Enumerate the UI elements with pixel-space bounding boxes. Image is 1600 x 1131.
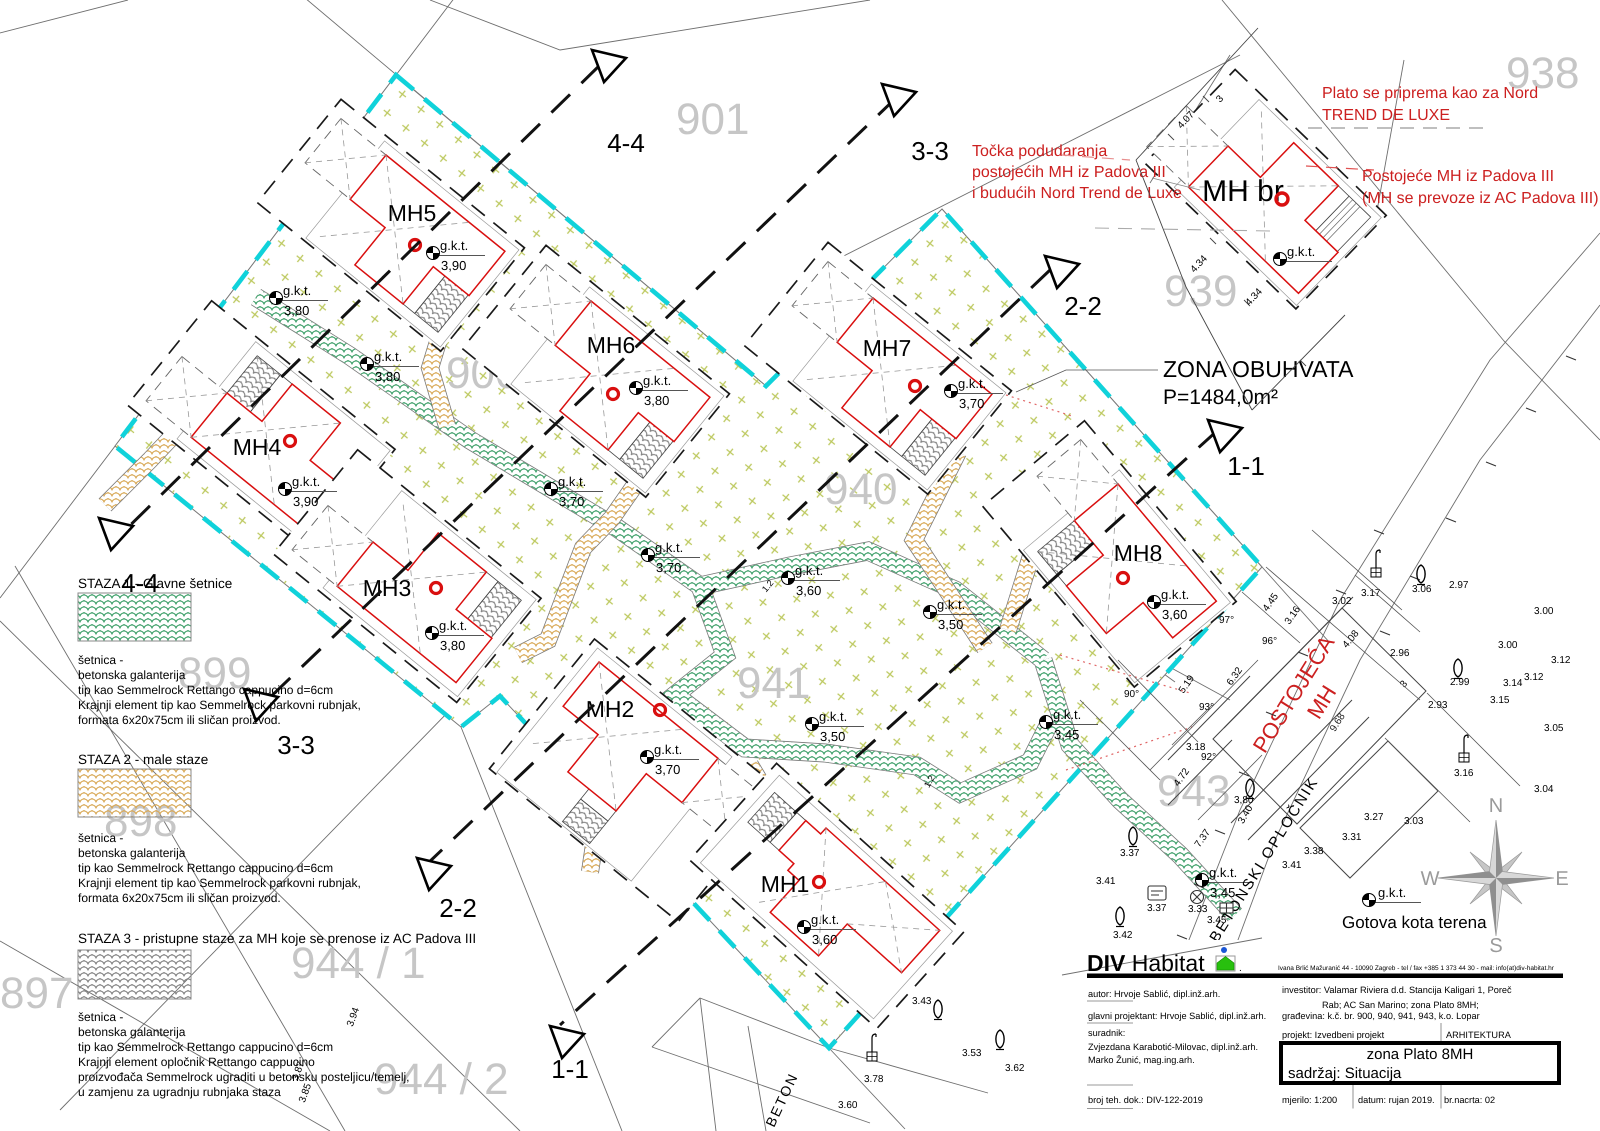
svg-text:tip kao Semmelrock Rettango ca: tip kao Semmelrock Rettango cappucino d=… [78, 683, 333, 697]
svg-text:g.k.t.: g.k.t. [811, 912, 839, 927]
svg-text:šetnica -: šetnica - [78, 831, 123, 845]
svg-text:g.k.t.: g.k.t. [292, 474, 320, 489]
svg-text:3.45: 3.45 [1207, 915, 1227, 926]
svg-text:g.k.t.: g.k.t. [283, 283, 311, 298]
svg-text:3,60: 3,60 [1162, 607, 1187, 622]
svg-text:g.k.t.: g.k.t. [1287, 244, 1315, 259]
svg-text:3-3: 3-3 [911, 136, 949, 166]
svg-text:3,70: 3,70 [559, 494, 584, 509]
svg-text:g.k.t.: g.k.t. [819, 709, 847, 724]
svg-text:3,80: 3,80 [284, 303, 309, 318]
svg-text:3.02: 3.02 [1332, 596, 1352, 607]
svg-text:3.42: 3.42 [1113, 930, 1133, 941]
svg-text:g.k.t.: g.k.t. [1053, 707, 1081, 722]
svg-text:3.06: 3.06 [1412, 584, 1432, 595]
svg-text:2.97: 2.97 [1449, 580, 1469, 591]
svg-text:MH7: MH7 [863, 335, 912, 361]
svg-text:ARHITEKTURA: ARHITEKTURA [1446, 1030, 1512, 1040]
svg-text:1-1: 1-1 [1227, 451, 1265, 481]
svg-text:939: 939 [1164, 267, 1237, 316]
svg-text:2-2: 2-2 [439, 893, 477, 923]
svg-text:E: E [1555, 868, 1568, 890]
svg-text:N: N [1489, 795, 1503, 817]
svg-text:STAZA 2 - male staze: STAZA 2 - male staze [78, 752, 208, 767]
svg-text:3.37: 3.37 [1147, 903, 1167, 914]
svg-text:W: W [1421, 868, 1440, 890]
svg-text:901: 901 [676, 95, 749, 144]
svg-text:betonska galanterija: betonska galanterija [78, 846, 186, 860]
svg-text:P=1484,0m²: P=1484,0m² [1163, 386, 1278, 409]
svg-text:97°: 97° [1219, 615, 1234, 626]
svg-text:g.k.t.: g.k.t. [440, 238, 468, 253]
svg-text:3,80: 3,80 [644, 393, 669, 408]
svg-text:90°: 90° [1124, 689, 1139, 700]
svg-text:MH1: MH1 [761, 871, 810, 897]
svg-text:3.16: 3.16 [1454, 768, 1474, 779]
svg-text:3.78: 3.78 [864, 1074, 884, 1085]
svg-text:3.38: 3.38 [1304, 846, 1324, 857]
svg-text:3.05: 3.05 [1544, 723, 1564, 734]
svg-text:MH4: MH4 [233, 434, 282, 460]
svg-text:g.k.t.: g.k.t. [937, 597, 965, 612]
svg-text:3.04: 3.04 [1534, 784, 1554, 795]
svg-text:3.43: 3.43 [912, 996, 932, 1007]
svg-text:2.93: 2.93 [1428, 700, 1448, 711]
svg-text:g.k.t.: g.k.t. [655, 540, 683, 555]
svg-text:šetnica -: šetnica - [78, 653, 123, 667]
svg-text:Ivana Brlić Mažuranić 44 - 100: Ivana Brlić Mažuranić 44 - 10090 Zagreb … [1278, 965, 1555, 972]
svg-text:i budućih Nord Trend de Luxe: i budućih Nord Trend de Luxe [972, 185, 1182, 202]
svg-text:formata 6x20x75cm ili sličan p: formata 6x20x75cm ili sličan proizvod. [78, 891, 281, 905]
svg-text:STAZA 1 - Glavne šetnice: STAZA 1 - Glavne šetnice [78, 576, 232, 591]
svg-text:ZONA OBUHVATA: ZONA OBUHVATA [1163, 356, 1354, 382]
svg-text:Zvjezdana Karabotić-Milovac, d: Zvjezdana Karabotić-Milovac, dipl.inž.ar… [1088, 1042, 1258, 1052]
svg-text:3,70: 3,70 [656, 560, 681, 575]
svg-text:tip kao Semmelrock Rettango ca: tip kao Semmelrock Rettango cappucino d=… [78, 1040, 333, 1054]
svg-text:3,80: 3,80 [440, 638, 465, 653]
svg-text:Postojeće MH iz Padova III: Postojeće MH iz Padova III [1362, 168, 1554, 185]
svg-text:3.15: 3.15 [1490, 695, 1510, 706]
svg-text:g.k.t.: g.k.t. [374, 349, 402, 364]
svg-text:betonska galanterija: betonska galanterija [78, 668, 186, 682]
svg-text:3,60: 3,60 [796, 583, 821, 598]
svg-text:MH6: MH6 [587, 332, 636, 358]
svg-text:3.37: 3.37 [1120, 848, 1140, 859]
svg-text:Krajnji element tip kao Semmel: Krajnji element tip kao Semmelrock parko… [78, 876, 361, 890]
svg-text:96°: 96° [1262, 636, 1277, 647]
svg-text:3,80: 3,80 [375, 369, 400, 384]
svg-text:g.k.t.: g.k.t. [643, 373, 671, 388]
svg-text:3,90: 3,90 [293, 494, 318, 509]
svg-text:3.00: 3.00 [1498, 640, 1518, 651]
svg-text:3.27: 3.27 [1364, 812, 1384, 823]
svg-text:3.03: 3.03 [1404, 816, 1424, 827]
svg-text:sadržaj: Situacija: sadržaj: Situacija [1288, 1065, 1402, 1082]
svg-text:3.53: 3.53 [962, 1048, 982, 1059]
svg-text:2-2: 2-2 [1064, 291, 1102, 321]
svg-text:br.nacrta: 02: br.nacrta: 02 [1444, 1095, 1495, 1105]
svg-text:g.k.t.: g.k.t. [1161, 587, 1189, 602]
svg-text:944 / 1: 944 / 1 [291, 939, 426, 988]
svg-text:3.17: 3.17 [1361, 588, 1381, 599]
svg-text:Krajnji element opločnik Retta: Krajnji element opločnik Rettango cappuc… [78, 1055, 315, 1069]
svg-text:g.k.t.: g.k.t. [1378, 885, 1406, 900]
svg-text:3.41: 3.41 [1096, 876, 1116, 887]
svg-text:tip kao Semmelrock Rettango ca: tip kao Semmelrock Rettango cappucino d=… [78, 861, 333, 875]
svg-text:projekt: Izvedbeni projekt: projekt: Izvedbeni projekt [1282, 1030, 1385, 1040]
svg-text:3.14: 3.14 [1503, 678, 1523, 689]
svg-text:1-1: 1-1 [551, 1054, 589, 1084]
svg-text:u zamjenu za ugradnju rubnjaka: u zamjenu za ugradnju rubnjaka staza [78, 1085, 281, 1099]
svg-text:3.33: 3.33 [1188, 904, 1208, 915]
svg-text:S: S [1489, 935, 1502, 957]
svg-text:šetnica -: šetnica - [78, 1010, 123, 1024]
svg-text:postojećih MH iz Padova III: postojećih MH iz Padova III [972, 164, 1166, 181]
svg-text:g.k.t.: g.k.t. [654, 742, 682, 757]
svg-text:MH2: MH2 [586, 696, 635, 722]
svg-text:datum: rujan 2019.: datum: rujan 2019. [1358, 1095, 1435, 1105]
svg-text:Marko Žunić, mag.ing.arh.: Marko Žunić, mag.ing.arh. [1088, 1054, 1195, 1065]
svg-text:g.k.t.: g.k.t. [795, 563, 823, 578]
svg-text:Rab; AC San Marino; zona Plato: Rab; AC San Marino; zona Plato 8MH; [1322, 1000, 1479, 1010]
svg-text:943: 943 [1157, 767, 1230, 816]
svg-text:941: 941 [737, 659, 810, 708]
svg-text:Gotova kota terena: Gotova kota terena [1342, 913, 1487, 932]
svg-text:Krajnji element tip kao Semmel: Krajnji element tip kao Semmelrock parko… [78, 698, 361, 712]
svg-text:3,50: 3,50 [820, 729, 845, 744]
svg-text:.: . [1239, 963, 1242, 974]
svg-text:betonska galanterija: betonska galanterija [78, 1025, 186, 1039]
svg-text:proizvođača Semmelrock ugradit: proizvođača Semmelrock ugraditi u betons… [78, 1070, 410, 1084]
svg-text:3.12: 3.12 [1551, 655, 1571, 666]
svg-text:3.31: 3.31 [1342, 832, 1362, 843]
svg-text:Plato se priprema kao za Nord: Plato se priprema kao za Nord [1322, 85, 1538, 102]
svg-text:TREND DE LUXE: TREND DE LUXE [1322, 107, 1450, 124]
svg-text:3,50: 3,50 [938, 617, 963, 632]
svg-text:3,70: 3,70 [655, 762, 680, 777]
svg-text:DIV Habitat: DIV Habitat [1087, 950, 1205, 976]
svg-text:4-4: 4-4 [607, 128, 645, 158]
svg-text:g.k.t.: g.k.t. [1209, 865, 1237, 880]
svg-text:građevina: k.č. br. 900, 940,: građevina: k.č. br. 900, 940, 941, 943, … [1282, 1011, 1480, 1021]
svg-text:3.41: 3.41 [1282, 860, 1302, 871]
svg-text:92°: 92° [1201, 752, 1216, 763]
svg-text:3.12: 3.12 [1524, 672, 1544, 683]
svg-text:investitor: Valamar Riviera d: investitor: Valamar Riviera d.d. Stancij… [1282, 985, 1512, 995]
svg-text:MH br: MH br [1202, 175, 1284, 208]
svg-text:formata 6x20x75cm ili sličan p: formata 6x20x75cm ili sličan proizvod. [78, 713, 281, 727]
svg-text:g.k.t.: g.k.t. [958, 376, 986, 391]
svg-text:MH8: MH8 [1114, 540, 1163, 566]
svg-text:3.60: 3.60 [838, 1100, 858, 1111]
svg-text:autor: Hrvoje Sablić, dipl.i: autor: Hrvoje Sablić, dipl.inž.arh. [1088, 989, 1220, 999]
svg-text:suradnik:: suradnik: [1088, 1028, 1125, 1038]
svg-text:897: 897 [0, 969, 73, 1018]
svg-text:3.00: 3.00 [1534, 606, 1554, 617]
svg-text:3,45: 3,45 [1054, 727, 1079, 742]
svg-text:3,70: 3,70 [959, 396, 984, 411]
svg-text:g.k.t.: g.k.t. [558, 474, 586, 489]
svg-text:3.62: 3.62 [1005, 1063, 1025, 1074]
svg-text:g.k.t.: g.k.t. [439, 618, 467, 633]
svg-text:mjerilo: 1:200: mjerilo: 1:200 [1282, 1095, 1337, 1105]
svg-text:3-3: 3-3 [277, 730, 315, 760]
svg-text:broj teh. dok.: DIV-122-2019: broj teh. dok.: DIV-122-2019 [1088, 1095, 1203, 1105]
svg-text:MH3: MH3 [363, 575, 412, 601]
svg-text:3,60: 3,60 [812, 932, 837, 947]
svg-text:glavni projektant: Hrvoje Sa: glavni projektant: Hrvoje Sablić, dipl.i… [1088, 1011, 1266, 1021]
svg-text:zona Plato 8MH: zona Plato 8MH [1367, 1046, 1474, 1063]
svg-text:3,90: 3,90 [441, 258, 466, 273]
svg-text:STAZA 3 - pristupne staze za M: STAZA 3 - pristupne staze za MH koje se … [78, 931, 476, 946]
svg-text:2.96: 2.96 [1390, 648, 1410, 659]
svg-text:MH5: MH5 [388, 200, 437, 226]
svg-text:940: 940 [824, 465, 897, 514]
svg-text:Točka podudaranja: Točka podudaranja [972, 143, 1107, 160]
svg-text:(MH se prevoze iz AC Padova II: (MH se prevoze iz AC Padova III) [1362, 190, 1599, 207]
